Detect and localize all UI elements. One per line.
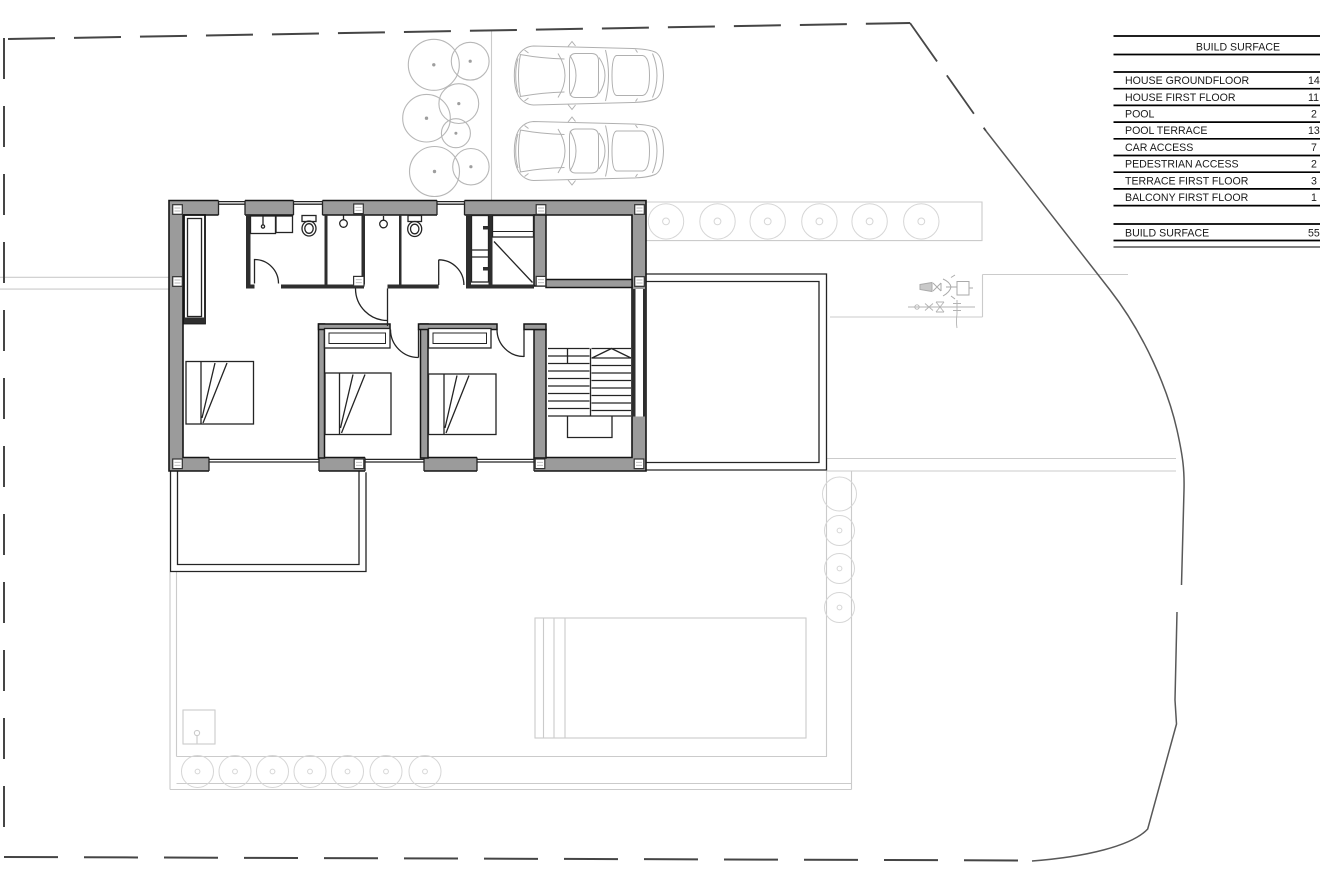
svg-text:POOL: POOL [1125,109,1155,121]
svg-text:7: 7 [1311,142,1317,154]
svg-text:POOL TERRACE: POOL TERRACE [1125,125,1207,137]
svg-text:13: 13 [1308,125,1320,137]
svg-text:TERRACE FIRST FLOOR: TERRACE FIRST FLOOR [1125,175,1249,187]
svg-text:HOUSE FIRST FLOOR: HOUSE FIRST FLOOR [1125,92,1236,104]
svg-text:11: 11 [1308,92,1319,104]
svg-text:BUILD SURFACE: BUILD SURFACE [1125,227,1209,239]
svg-text:CAR ACCESS: CAR ACCESS [1125,142,1193,154]
svg-text:1: 1 [1311,192,1317,204]
svg-text:14: 14 [1308,75,1320,87]
svg-text:3: 3 [1311,175,1317,187]
svg-text:BUILD SURFACE: BUILD SURFACE [1196,42,1280,54]
svg-text:PEDESTRIAN ACCESS: PEDESTRIAN ACCESS [1125,159,1239,171]
svg-text:BALCONY FIRST FLOOR: BALCONY FIRST FLOOR [1125,192,1249,204]
svg-text:HOUSE GROUNDFLOOR: HOUSE GROUNDFLOOR [1125,75,1250,87]
svg-text:55: 55 [1308,227,1320,239]
svg-text:2: 2 [1311,159,1317,171]
svg-text:2: 2 [1311,109,1317,121]
